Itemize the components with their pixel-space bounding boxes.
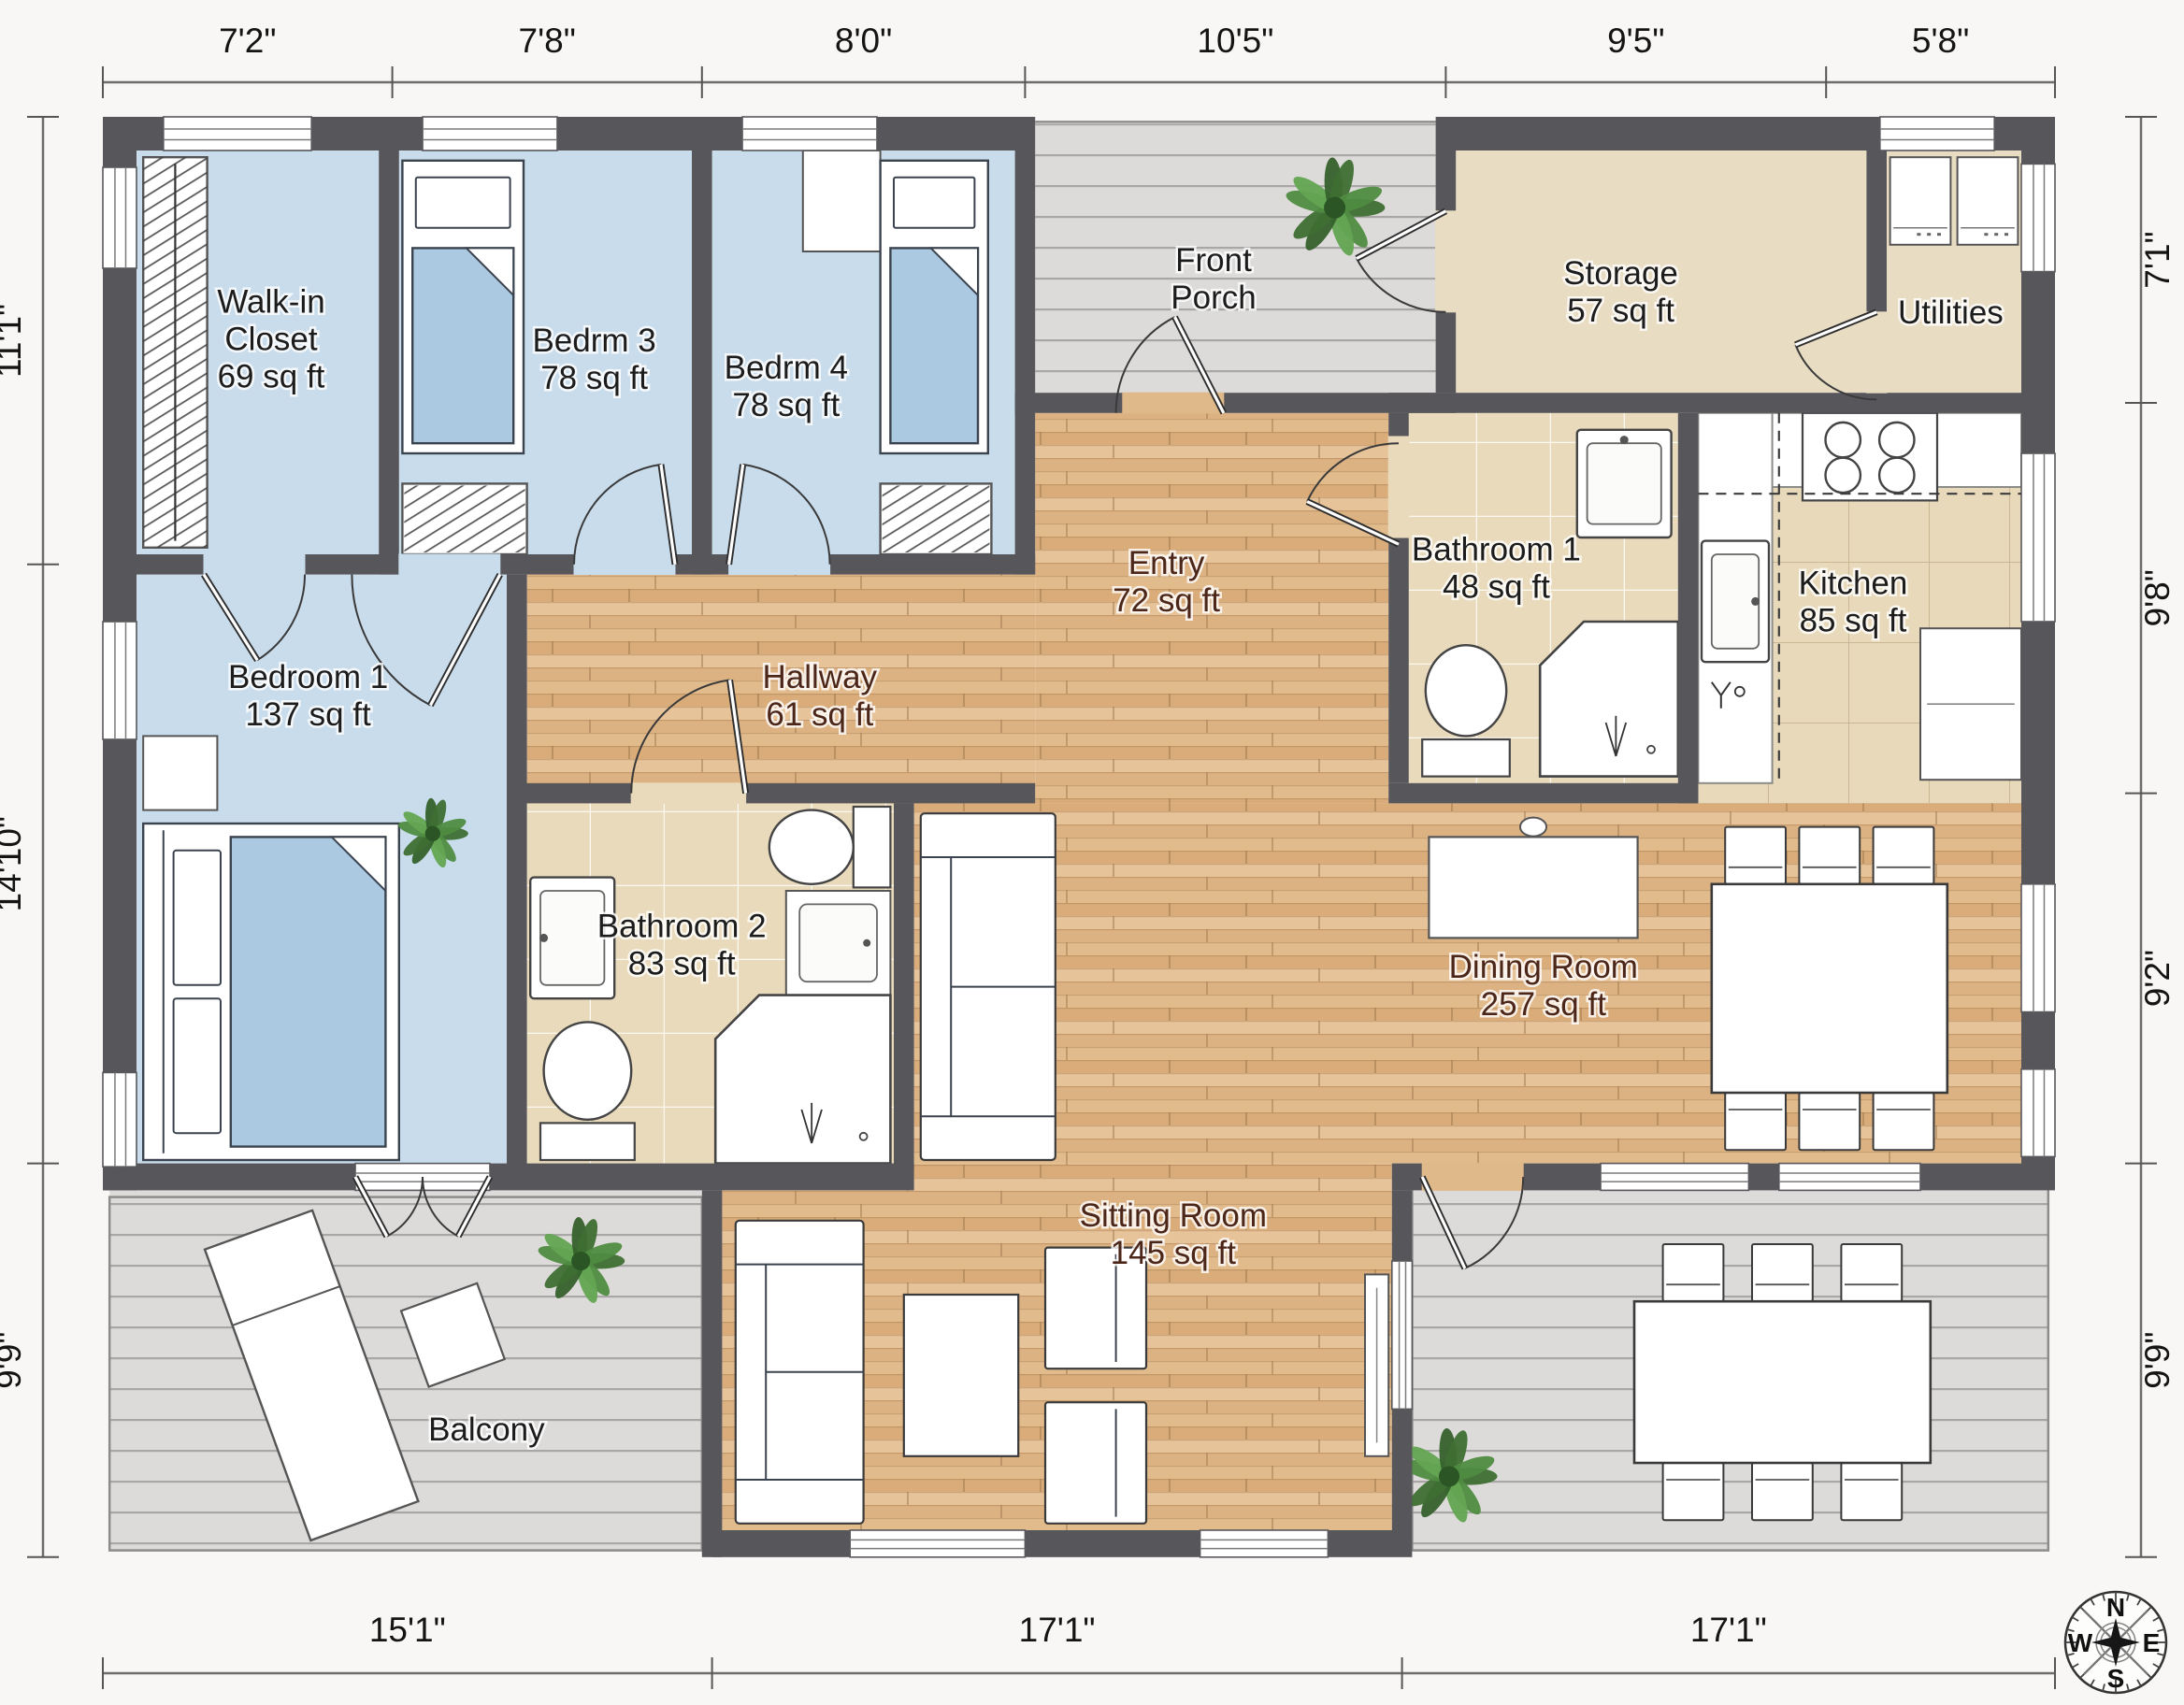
dimension-label: 15'1" [369, 1611, 446, 1649]
single-bed-icon [402, 161, 524, 453]
closet-rail-icon [402, 483, 526, 554]
room-label-line: Bathroom 1 [1412, 531, 1581, 567]
room-label-line: 83 sq ft [628, 946, 736, 982]
wall [1678, 413, 1699, 804]
room-label-line: Sitting Room [1080, 1197, 1267, 1234]
dimension-label: 9'8" [2138, 569, 2177, 626]
wall [692, 150, 712, 575]
window [2021, 453, 2055, 622]
room-label-line: Front [1175, 242, 1252, 279]
room-label-line: Storage [1563, 255, 1678, 292]
room-label-front-porch: FrontPorch [1171, 242, 1256, 316]
floor-plan-svg: Walk-inCloset69 sq ftBedrm 378 sq ftBedr… [0, 0, 2184, 1705]
room-label-storage: Storage57 sq ft [1563, 255, 1678, 329]
shower-icon [715, 996, 890, 1164]
compass-letter-n: N [2106, 1593, 2125, 1622]
coffee-table-icon [904, 1295, 1018, 1456]
room-label-line: Utilities [1898, 294, 2004, 331]
dining-table-icon [1712, 827, 1947, 1151]
wall [1015, 150, 1036, 575]
wardrobe-icon [143, 157, 207, 548]
wall [507, 575, 527, 1170]
armchair-icon [1045, 1402, 1146, 1524]
dimension-label: 17'1" [1690, 1611, 1767, 1649]
patio-table-icon [1634, 1244, 1931, 1520]
room-label-line: 78 sq ft [732, 387, 840, 423]
room-label-line: Hallway [763, 659, 878, 695]
dimension-label: 9'5" [1607, 21, 1664, 60]
door-opening [631, 782, 746, 804]
window [103, 1072, 136, 1167]
door-opening [398, 554, 500, 576]
dimension-label: 14'10" [0, 816, 28, 912]
room-label-line: 57 sq ft [1567, 293, 1674, 329]
compass-letter-e: E [2143, 1628, 2161, 1657]
dimension-label: 9'9" [0, 1332, 28, 1389]
room-label-line: 69 sq ft [218, 359, 325, 395]
window [423, 117, 557, 150]
room-label-line: Bedrm 3 [532, 322, 655, 359]
door-opening [1866, 311, 1888, 393]
dryer-icon [1958, 157, 2019, 245]
washer-icon [1890, 157, 1951, 245]
bathroom-sink-icon [1577, 430, 1672, 537]
room-label-line: 145 sq ft [1111, 1235, 1237, 1271]
room-label-balcony: Balcony [428, 1411, 545, 1448]
room-label-line: 61 sq ft [766, 696, 873, 733]
room-label-line: Bedroom 1 [228, 659, 388, 695]
double-bed-icon [143, 824, 399, 1160]
room-label-walk-in-closet: Walk-inCloset69 sq ft [217, 284, 324, 395]
room-label-line: Entry [1128, 545, 1205, 581]
dimension-label: 10'5" [1197, 21, 1273, 60]
room-label-line: Bedrm 4 [725, 350, 848, 386]
window [103, 167, 136, 268]
room-label-bedrm-4: Bedrm 478 sq ft [725, 350, 848, 423]
compass-rose: NESW [2065, 1592, 2166, 1693]
floor-plan-canvas: Walk-inCloset69 sq ftBedrm 378 sq ftBedr… [0, 0, 2184, 1705]
wall [379, 150, 399, 575]
cabinet-icon [803, 150, 881, 251]
room-label-line: Balcony [428, 1411, 545, 1448]
room-label-line: 72 sq ft [1113, 582, 1220, 619]
window [1392, 1261, 1413, 1409]
compass-letter-s: S [2107, 1664, 2125, 1693]
shower-icon [1540, 622, 1678, 777]
nightstand-icon [143, 736, 217, 810]
fridge-icon [1920, 628, 2021, 780]
window [164, 117, 311, 150]
dimension-label: 8'0" [835, 21, 892, 60]
door-opening [1388, 437, 1410, 538]
washbasin-icon [786, 891, 891, 996]
window [1200, 1530, 1329, 1557]
dimension-label: 7'8" [519, 21, 576, 60]
tv-icon [1365, 1274, 1388, 1455]
wall [1866, 150, 1887, 312]
window [742, 117, 877, 150]
bidet-icon [769, 807, 891, 887]
window [1880, 117, 1994, 150]
room-label-bedrm-3: Bedrm 378 sq ft [532, 322, 655, 396]
room-label-line: Kitchen [1799, 565, 1908, 601]
room-label-line: 48 sq ft [1443, 568, 1550, 605]
room-label-line: Walk-in [217, 284, 324, 321]
wall [2021, 117, 2055, 1183]
dimension-label: 7'1" [2138, 231, 2177, 288]
wall [1388, 393, 2055, 413]
sofa-icon [736, 1221, 864, 1524]
wall [507, 783, 1035, 804]
room-label-line: Porch [1171, 279, 1256, 316]
window [1779, 1164, 1920, 1191]
door-opening [1122, 393, 1224, 414]
toilet-icon [1422, 645, 1510, 776]
wall [702, 1190, 723, 1556]
room-label-hallway: Hallway61 sq ft [763, 659, 878, 733]
room-label-line: 78 sq ft [540, 360, 648, 396]
room-label-line: 85 sq ft [1800, 602, 1907, 638]
window [1601, 1164, 1748, 1191]
room-label-line: 257 sq ft [1481, 986, 1607, 1023]
dimension-label: 9'9" [2138, 1332, 2177, 1389]
wall [894, 803, 914, 1169]
window [2021, 164, 2055, 271]
compass-letter-w: W [2068, 1628, 2093, 1657]
kitchen-sink-icon [1702, 541, 1769, 663]
room-label-utilities: Utilities [1898, 294, 2004, 331]
dimension-label: 11'1" [0, 304, 28, 378]
room-label-line: Dining Room [1449, 949, 1638, 985]
door-opening [204, 554, 306, 576]
closet-rail-icon [881, 483, 992, 554]
room-label-kitchen: Kitchen85 sq ft [1799, 565, 1908, 638]
door-opening [1435, 210, 1457, 312]
dimension-label: 7'2" [219, 21, 276, 60]
wall [1388, 783, 1698, 804]
room-label-line: Bathroom 2 [597, 909, 767, 945]
room-label-entry: Entry72 sq ft [1113, 545, 1220, 619]
window [2021, 1069, 2055, 1157]
dimension-label: 17'1" [1019, 1611, 1096, 1649]
dimension-label: 5'8" [1912, 21, 1969, 60]
door-opening [574, 554, 676, 576]
single-bed-icon [881, 161, 988, 453]
door-opening [1422, 1163, 1524, 1191]
sofa-icon [921, 813, 1056, 1160]
room-label-bedroom-1: Bedroom 1137 sq ft [228, 659, 388, 733]
room-label-line: Closet [224, 322, 317, 358]
window [850, 1530, 1025, 1557]
stove-icon [1803, 413, 1937, 501]
window [103, 622, 136, 739]
dimension-label: 9'2" [2138, 950, 2177, 1007]
door-opening [728, 554, 830, 576]
toilet-icon [540, 1022, 635, 1160]
room-label-line: 137 sq ft [245, 696, 371, 733]
window [2021, 884, 2055, 1012]
